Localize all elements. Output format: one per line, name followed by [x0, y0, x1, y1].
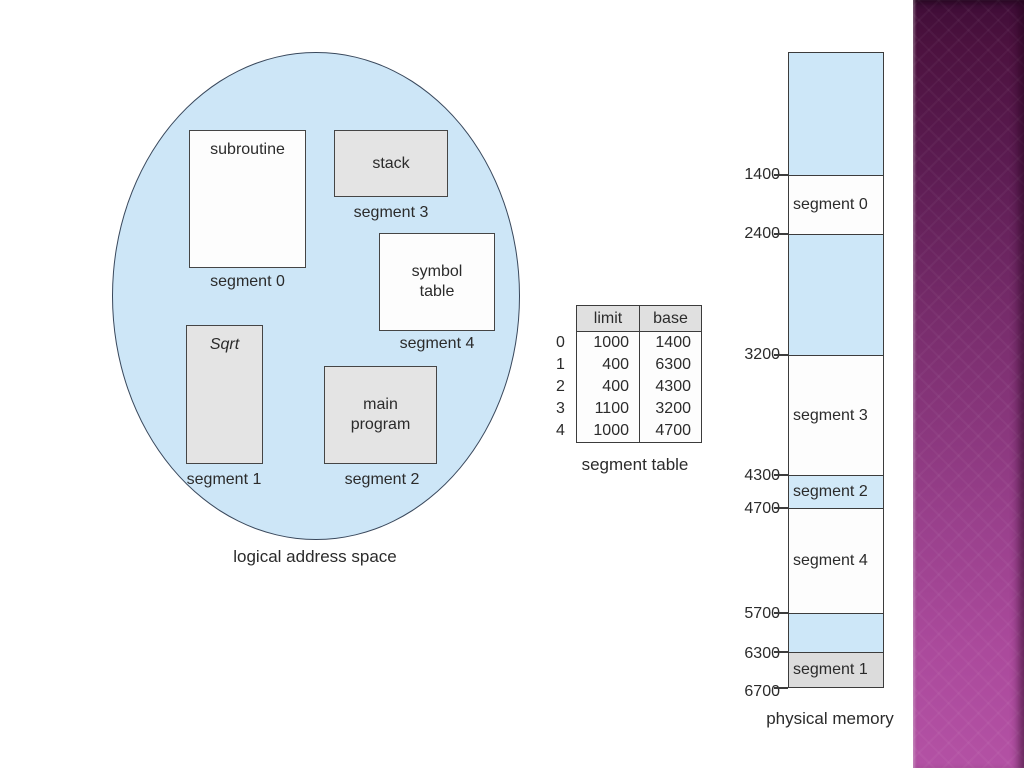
segment-table: 0 1 2 3 4 limit base 1000 1400 400 6300 …	[556, 305, 702, 443]
base-value: 1400	[639, 332, 701, 354]
memory-address-label: 2400	[700, 225, 780, 243]
memory-address-label: 6700	[700, 683, 780, 701]
base-value: 6300	[639, 354, 701, 376]
memory-address-tick	[774, 651, 788, 653]
base-value: 3200	[639, 398, 701, 420]
caption-segment-2: segment 2	[332, 471, 432, 489]
segment-index: 3	[556, 398, 572, 420]
limit-value: 1000	[577, 332, 639, 354]
memory-address-tick	[774, 612, 788, 614]
memory-block-segment-0: segment 0	[789, 175, 883, 234]
segment-box-symbol-table-label: symbol table	[401, 262, 473, 302]
slide-accent-bar	[913, 0, 1024, 768]
segment-index: 1	[556, 354, 572, 376]
memory-block-segment-4: segment 4	[789, 508, 883, 613]
segment-index: 2	[556, 376, 572, 398]
memory-block-label: segment 1	[793, 661, 868, 679]
segment-box-subroutine: subroutine	[189, 130, 306, 268]
memory-block-free	[789, 53, 883, 175]
limit-value: 1000	[577, 420, 639, 442]
memory-address-tick	[774, 507, 788, 509]
physical-memory-column: segment 0 segment 3 segment 2 segment 4 …	[788, 52, 884, 688]
segment-box-sqrt-label: Sqrt	[210, 335, 239, 355]
segment-box-main-program-label: main program	[345, 395, 417, 435]
memory-address-label: 4300	[700, 467, 780, 485]
caption-segment-3: segment 3	[334, 204, 448, 222]
memory-address-label: 5700	[700, 605, 780, 623]
caption-segment-0: segment 0	[189, 273, 306, 291]
memory-address-tick	[774, 233, 788, 235]
limit-value: 400	[577, 376, 639, 398]
memory-address-label: 3200	[700, 346, 780, 364]
logical-address-space-caption: logical address space	[165, 547, 465, 567]
memory-address-tick	[774, 474, 788, 476]
segment-table-grid: limit base 1000 1400 400 6300 400 4300 1…	[576, 305, 702, 443]
memory-address-label: 4700	[700, 500, 780, 518]
column-header-base: base	[639, 306, 701, 331]
table-row: 400 6300	[577, 354, 701, 376]
slide: subroutine segment 0 stack segment 3 sym…	[0, 0, 1024, 768]
limit-value: 1100	[577, 398, 639, 420]
segment-box-stack: stack	[334, 130, 448, 197]
segment-table-index-column: 0 1 2 3 4	[556, 305, 572, 443]
base-value: 4700	[639, 420, 701, 442]
memory-address-tick	[774, 354, 788, 356]
memory-address-tick	[774, 174, 788, 176]
caption-segment-1: segment 1	[174, 471, 274, 489]
limit-value: 400	[577, 354, 639, 376]
segment-index: 4	[556, 420, 572, 442]
memory-block-label: segment 4	[793, 552, 868, 570]
segment-box-subroutine-label: subroutine	[210, 140, 285, 160]
segment-box-sqrt: Sqrt	[186, 325, 263, 464]
table-row: 1000 4700	[577, 420, 701, 442]
memory-block-label: segment 2	[793, 483, 868, 501]
segment-box-stack-label: stack	[372, 154, 409, 174]
memory-block-label: segment 0	[793, 196, 868, 214]
table-row: 1000 1400	[577, 332, 701, 354]
caption-segment-4: segment 4	[379, 335, 495, 353]
table-row: 400 4300	[577, 376, 701, 398]
segment-index: 0	[556, 332, 572, 354]
memory-block-segment-3: segment 3	[789, 355, 883, 475]
segment-box-main-program: main program	[324, 366, 437, 464]
memory-block-segment-1: segment 1	[789, 652, 883, 687]
column-header-limit: limit	[577, 306, 639, 331]
base-value: 4300	[639, 376, 701, 398]
segment-table-header: limit base	[577, 306, 701, 332]
segment-box-symbol-table: symbol table	[379, 233, 495, 331]
memory-address-tick	[774, 687, 788, 689]
segment-table-caption: segment table	[561, 455, 709, 475]
physical-memory-caption: physical memory	[740, 709, 920, 729]
memory-block-label: segment 3	[793, 407, 868, 425]
memory-address-label: 1400	[700, 166, 780, 184]
table-row: 1100 3200	[577, 398, 701, 420]
memory-block-free	[789, 234, 883, 355]
memory-address-label: 6300	[700, 645, 780, 663]
memory-block-free	[789, 613, 883, 652]
memory-block-segment-2: segment 2	[789, 475, 883, 508]
